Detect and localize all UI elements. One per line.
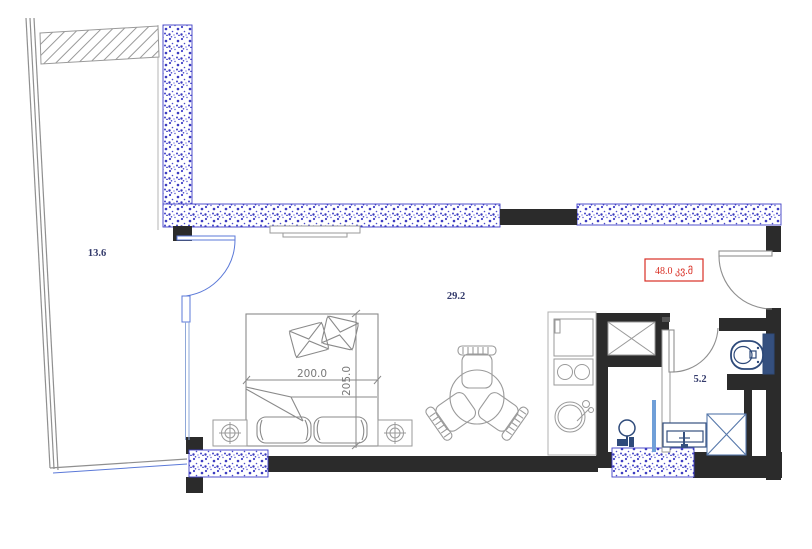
total-area-label: 48.0 კვ.მ <box>655 265 693 277</box>
glass-partition <box>652 400 656 452</box>
canopy-hatch <box>40 26 159 64</box>
shower-icon <box>707 414 746 455</box>
nightstand-icon <box>213 420 247 446</box>
tv-console-icon <box>270 226 360 237</box>
balcony-area-label: 13.6 <box>88 248 106 259</box>
wall-top-left <box>163 204 500 227</box>
balcony-door <box>177 236 235 322</box>
entry-door <box>719 251 772 309</box>
stove-icon <box>554 359 593 385</box>
chair <box>424 387 480 442</box>
window-bottom-middle <box>612 448 694 477</box>
total-area-badge: 48.0 კვ.მ <box>645 259 703 281</box>
wall-top-right <box>577 204 781 225</box>
toilet-icon <box>731 334 774 374</box>
wall-niche <box>752 390 766 456</box>
bed-depth-dimension: 205.0 <box>341 366 353 396</box>
floor-plan-drawing: 48.0 კვ.მ 13.6 29.2 5.2 <box>0 0 812 549</box>
balcony-glazing-partition <box>186 322 190 440</box>
balcony-edge-line <box>53 464 187 473</box>
bathroom-door <box>669 328 718 372</box>
floor-plan: 48.0 კვ.მ 13.6 29.2 5.2 <box>0 0 812 549</box>
chair <box>458 346 496 388</box>
window-bottom-left <box>189 450 268 477</box>
tap-fixture-icon <box>617 420 635 447</box>
dining-table-icon <box>450 370 504 424</box>
nightstand-icon <box>378 420 412 446</box>
chair <box>473 387 529 442</box>
living-room-area-label: 29.2 <box>447 291 465 302</box>
wall-balcony-partition <box>163 25 192 208</box>
masonry-walls <box>163 25 781 227</box>
fridge-icon <box>554 319 593 356</box>
bathroom-area-label: 5.2 <box>693 374 706 385</box>
washbasin-icon <box>663 423 706 448</box>
bed-width-dimension: 200.0 <box>297 368 327 380</box>
shaft-icon <box>608 322 655 355</box>
dining-set-icon <box>424 346 529 442</box>
